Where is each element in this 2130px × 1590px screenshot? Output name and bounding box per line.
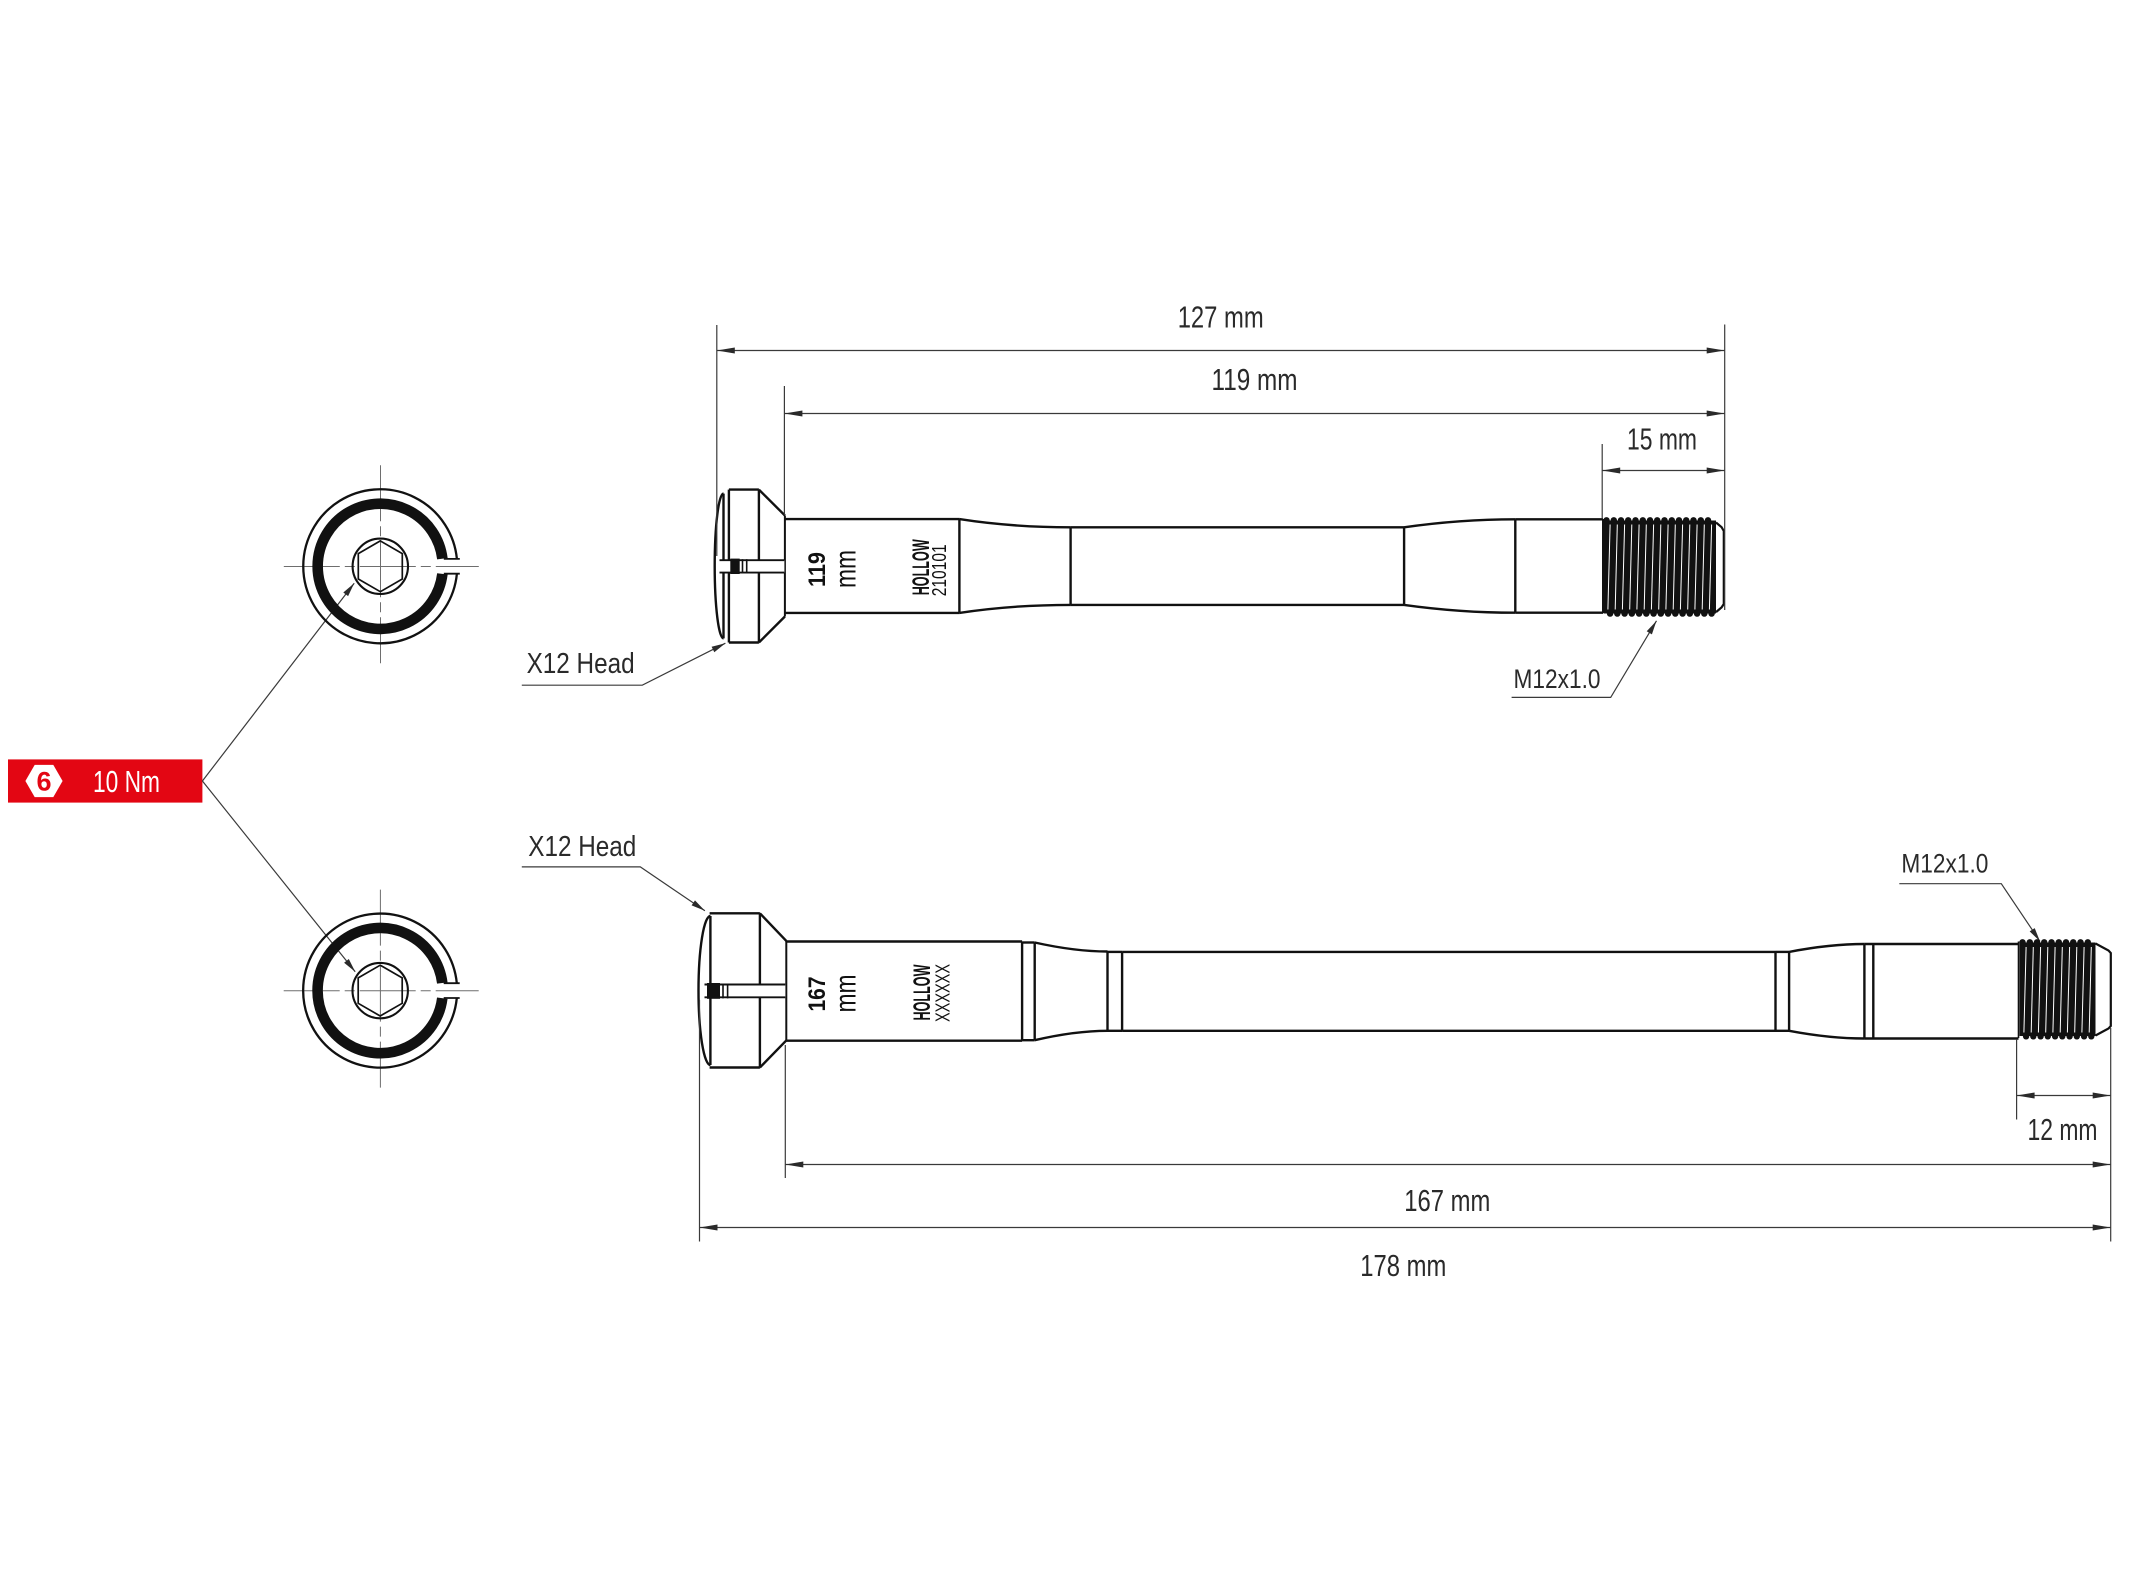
svg-text:119 mm: 119 mm	[1212, 363, 1298, 397]
svg-text:119: 119	[804, 552, 831, 587]
svg-text:XXXXXX: XXXXXX	[933, 964, 955, 1022]
svg-text:167: 167	[804, 977, 831, 1012]
svg-text:210101: 210101	[929, 544, 951, 596]
svg-text:10 Nm: 10 Nm	[93, 764, 160, 799]
svg-text:6: 6	[36, 767, 51, 797]
svg-text:X12 Head: X12 Head	[528, 831, 636, 863]
svg-text:M12x1.0: M12x1.0	[1514, 664, 1601, 694]
svg-text:127 mm: 127 mm	[1178, 300, 1264, 334]
svg-text:178 mm: 178 mm	[1360, 1249, 1446, 1283]
svg-text:167 mm: 167 mm	[1404, 1184, 1490, 1218]
svg-text:mm: mm	[830, 975, 863, 1013]
svg-text:12 mm: 12 mm	[2028, 1113, 2098, 1147]
svg-text:mm: mm	[830, 550, 863, 588]
svg-text:X12 Head: X12 Head	[527, 648, 635, 680]
svg-text:15 mm: 15 mm	[1627, 423, 1697, 457]
svg-text:M12x1.0: M12x1.0	[1901, 849, 1988, 879]
